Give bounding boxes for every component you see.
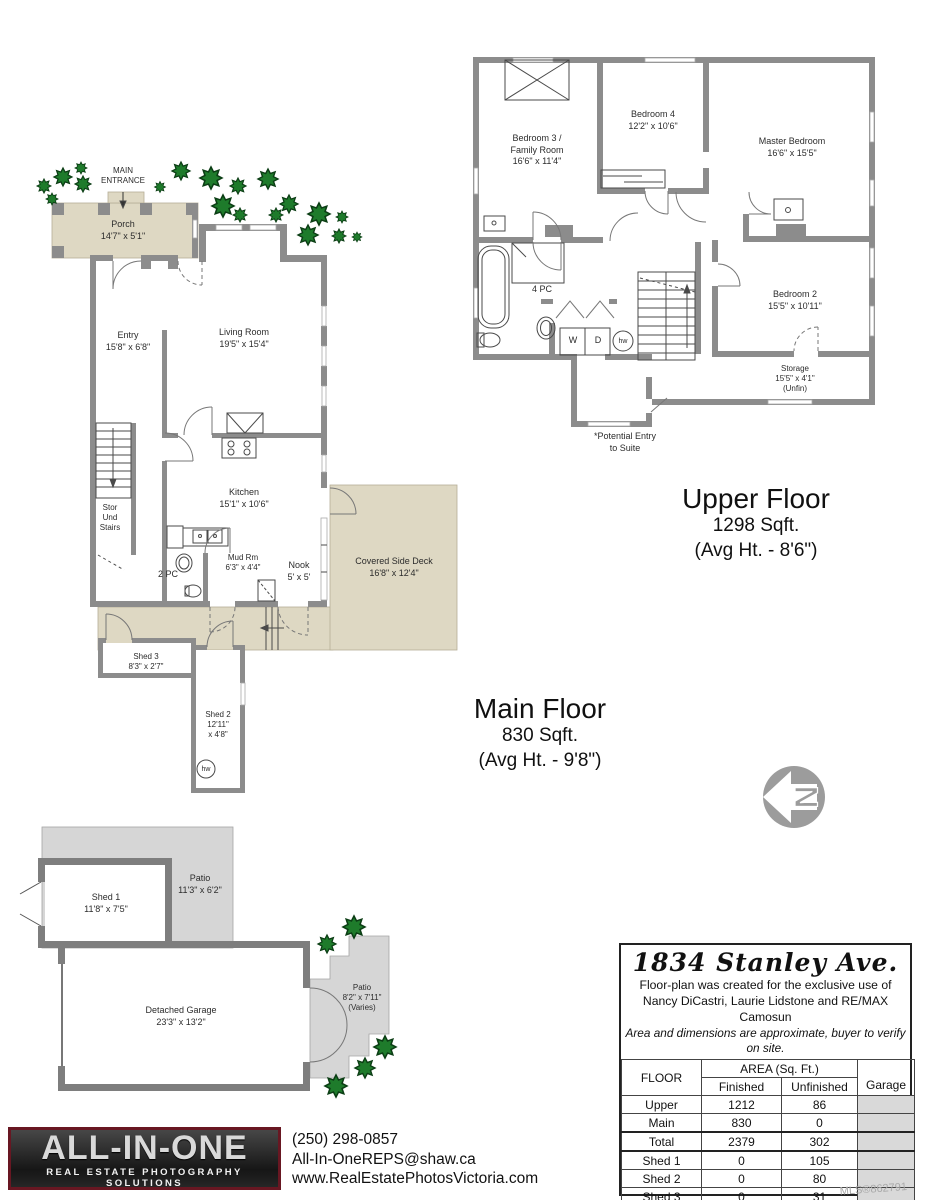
room-label-4pc-bath: 4 PC [532, 284, 552, 296]
contact-email: All-In-OneREPS@shaw.ca [292, 1150, 538, 1170]
room-label-living-room: Living Room 19'5" x 15'4" [219, 327, 269, 350]
room-label-stor-und-stairs: Stor Und Stairs [100, 503, 120, 533]
garage-plan [20, 827, 396, 1097]
room-label-detached-garage: Detached Garage 23'3" x 13'2" [145, 1005, 216, 1028]
area-summary-panel: 1834 Stanley Ave. Floor-plan was created… [619, 943, 912, 1196]
room-label-bedroom4: Bedroom 4 12'2" x 10'6" [628, 109, 677, 132]
main-floor-caption: Main Floor 830 Sqft. (Avg Ht. - 9'8") [474, 694, 606, 774]
main-walls [52, 203, 327, 793]
room-label-kitchen: Kitchen 15'1" x 10'6" [219, 487, 268, 510]
disclaimer-line-3: Area and dimensions are approximate, buy… [621, 1026, 910, 1057]
floorplan-page: N Bedroom 3 / Family Room 16'6" x 11'4" … [0, 0, 927, 1200]
shower-icon [512, 243, 564, 283]
disclaimer-line-1: Floor-plan was created for the exclusive… [621, 978, 910, 994]
wc-toilet-icon [185, 585, 201, 597]
room-label-master-bedroom: Master Bedroom 16'6" x 15'5" [759, 136, 826, 159]
kitchen-counter [167, 526, 228, 548]
room-label-covered-side-deck: Covered Side Deck 16'8" x 12'4" [355, 556, 433, 579]
main-stairs [96, 423, 131, 498]
room-label-porch: Porch 14'7" x 5'1" [101, 219, 145, 242]
contact-website: www.RealEstatePhotosVictoria.com [292, 1169, 538, 1189]
col-header-floor: FLOOR [622, 1060, 702, 1096]
room-label-2pc: 2 PC [158, 569, 178, 581]
col-header-area: AREA (Sq. Ft.) [702, 1060, 858, 1078]
skylight-icon [505, 60, 569, 100]
nook-closet [258, 580, 275, 601]
table-row: Total2379302 [622, 1132, 915, 1151]
washer-label: W [569, 335, 578, 347]
room-label-nook: Nook 5' x 5' [288, 560, 311, 583]
room-label-bedroom3-family: Bedroom 3 / Family Room 16'6" x 11'4" [510, 133, 563, 168]
compass-north-letter: N [788, 785, 824, 808]
north-compass-icon: N [763, 766, 825, 828]
main-floor-plan [37, 162, 457, 793]
room-label-entry: Entry 15'8" x 6'8" [106, 330, 150, 353]
upper-floor-caption: Upper Floor 1298 Sqft. (Avg Ht. - 8'6") [682, 484, 830, 564]
photographer-logo: ALL-IN-ONE REAL ESTATE PHOTOGRAPHY SOLUT… [8, 1127, 281, 1190]
room-label-shed2: Shed 2 12'11" x 4'8" [205, 710, 230, 740]
room-label-shed3: Shed 3 8'3" x 2'7" [129, 652, 164, 672]
hw-label-upper: hw [619, 338, 628, 345]
contact-info: (250) 298-0857 All-In-OneREPS@shaw.ca ww… [292, 1130, 538, 1189]
room-label-shed1: Shed 1 11'8" x 7'5" [84, 892, 128, 915]
closet-sliding-doors [601, 170, 665, 188]
area-table: FLOOR AREA (Sq. Ft.) Garage Finished Unf… [621, 1059, 915, 1200]
table-row: Upper121286 [622, 1096, 915, 1114]
toilet-icon [477, 333, 500, 347]
room-label-patio-right: Patio 8'2" x 7'11" (Varies) [343, 983, 382, 1013]
room-label-mud-room: Mud Rm 6'3" x 4'4" [226, 553, 261, 573]
label-potential-entry: *Potential Entry to Suite [594, 431, 656, 454]
nightstand-icon [774, 199, 803, 220]
hw-label-main: hw [202, 766, 211, 773]
col-header-unfinished: Unfinished [782, 1078, 858, 1096]
table-row: Main8300 [622, 1114, 915, 1133]
label-main-entrance: MAIN ENTRANCE [101, 166, 145, 186]
wc-sink-icon [176, 554, 192, 572]
col-header-garage: Garage [858, 1060, 915, 1096]
stove-icon [222, 438, 256, 458]
dryer-label: D [595, 335, 602, 347]
upper-stairs [638, 272, 695, 360]
bathtub-icon [478, 246, 509, 328]
table-row: Shed 10105 [622, 1151, 915, 1170]
logo-title: ALL-IN-ONE [11, 1130, 278, 1166]
fireplace-icon [227, 413, 263, 433]
room-label-storage: Storage 15'5" x 4'1" (Unfin) [775, 364, 814, 394]
contact-phone: (250) 298-0857 [292, 1130, 538, 1150]
room-label-bedroom2: Bedroom 2 15'5" x 10'11" [768, 289, 822, 312]
room-label-patio-upper: Patio 11'3" x 6'2" [178, 873, 222, 896]
disclaimer-line-2: Nancy DiCastri, Laurie Lidstone and RE/M… [621, 994, 910, 1026]
logo-subtitle: REAL ESTATE PHOTOGRAPHY SOLUTIONS [11, 1167, 278, 1189]
col-header-finished: Finished [702, 1078, 782, 1096]
upper-fixtures [477, 60, 803, 360]
address-title: 1834 Stanley Ave. [621, 947, 910, 978]
vanity-icon [484, 216, 505, 231]
main-door-arcs [106, 261, 356, 647]
